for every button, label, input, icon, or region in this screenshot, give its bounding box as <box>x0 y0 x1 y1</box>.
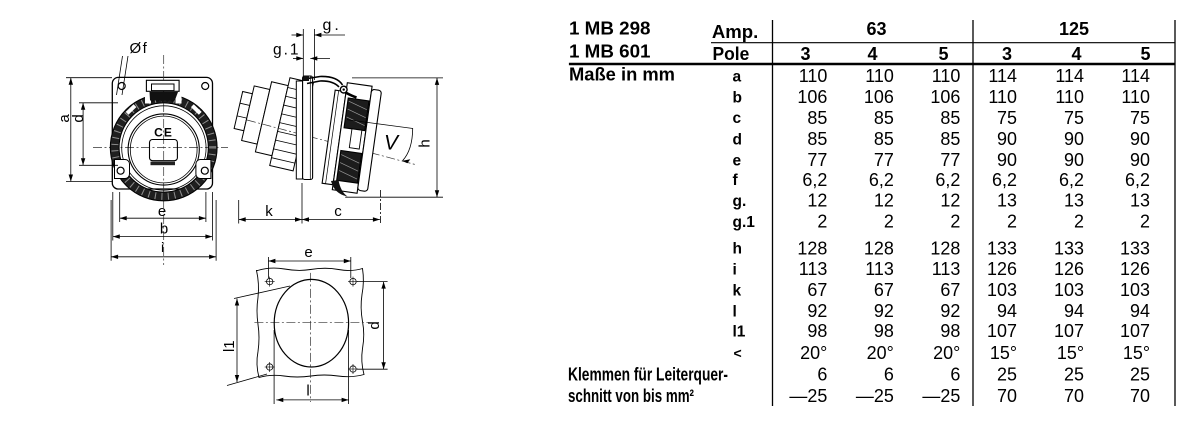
svg-text:85: 85 <box>874 108 894 128</box>
svg-text:106: 106 <box>797 87 827 107</box>
svg-text:20°: 20° <box>933 343 960 363</box>
svg-text:c: c <box>733 110 742 127</box>
svg-text:2: 2 <box>950 211 960 231</box>
svg-text:Pole: Pole <box>713 44 750 64</box>
svg-text:15°: 15° <box>990 343 1017 363</box>
svg-text:70: 70 <box>1130 386 1150 406</box>
svg-text:70: 70 <box>1064 386 1084 406</box>
svg-text:90: 90 <box>997 150 1017 170</box>
svg-text:g.1: g.1 <box>273 42 301 59</box>
svg-text:98: 98 <box>874 321 894 341</box>
svg-text:—25: —25 <box>856 386 894 406</box>
svg-text:103: 103 <box>1120 280 1150 300</box>
svg-text:c: c <box>334 203 342 220</box>
svg-text:126: 126 <box>987 259 1017 279</box>
svg-text:l1: l1 <box>733 324 746 341</box>
svg-text:126: 126 <box>1120 259 1150 279</box>
svg-text:13: 13 <box>1130 190 1150 210</box>
svg-text:90: 90 <box>1130 129 1150 149</box>
svg-text:106: 106 <box>864 87 894 107</box>
svg-text:l1: l1 <box>221 340 238 352</box>
svg-text:70: 70 <box>997 386 1017 406</box>
svg-text:g.1: g.1 <box>733 214 756 231</box>
svg-text:b: b <box>733 89 742 106</box>
svg-text:126: 126 <box>1054 259 1084 279</box>
svg-text:d: d <box>733 132 742 149</box>
svg-text:94: 94 <box>1130 301 1150 321</box>
svg-text:133: 133 <box>1120 238 1150 258</box>
svg-text:85: 85 <box>807 129 827 149</box>
svg-text:k: k <box>265 203 273 220</box>
svg-text:6,2: 6,2 <box>992 170 1017 190</box>
svg-text:13: 13 <box>1064 190 1084 210</box>
svg-text:b: b <box>160 221 168 238</box>
svg-text:133: 133 <box>987 238 1017 258</box>
svg-text:90: 90 <box>1064 129 1084 149</box>
svg-text:106: 106 <box>930 87 960 107</box>
svg-text:25: 25 <box>1130 364 1150 384</box>
svg-text:92: 92 <box>807 301 827 321</box>
svg-text:90: 90 <box>1130 150 1150 170</box>
svg-text:5: 5 <box>1140 44 1150 64</box>
svg-text:110: 110 <box>1055 87 1084 107</box>
svg-text:15°: 15° <box>1123 343 1150 363</box>
svg-text:20°: 20° <box>800 343 827 363</box>
svg-text:2: 2 <box>817 211 827 231</box>
svg-text:Maße in mm: Maße in mm <box>569 65 675 85</box>
svg-text:110: 110 <box>988 87 1017 107</box>
svg-text:25: 25 <box>1064 364 1084 384</box>
svg-text:a: a <box>733 69 742 86</box>
svg-text:107: 107 <box>1054 321 1084 341</box>
svg-text:103: 103 <box>987 280 1017 300</box>
svg-text:25: 25 <box>997 364 1017 384</box>
svg-text:90: 90 <box>1064 150 1084 170</box>
svg-text:67: 67 <box>807 280 827 300</box>
svg-text:schnitt von bis mm²: schnitt von bis mm² <box>568 386 694 406</box>
svg-text:l: l <box>306 383 309 400</box>
svg-text:85: 85 <box>940 129 960 149</box>
svg-text:k: k <box>733 283 742 300</box>
svg-text:6,2: 6,2 <box>869 170 894 190</box>
svg-text:6,2: 6,2 <box>935 170 960 190</box>
svg-text:94: 94 <box>997 301 1017 321</box>
svg-text:3: 3 <box>1002 44 1012 64</box>
svg-text:1 MB 298: 1 MB 298 <box>569 19 651 39</box>
svg-text:94: 94 <box>1064 301 1084 321</box>
svg-text:110: 110 <box>799 66 828 86</box>
svg-text:67: 67 <box>940 280 960 300</box>
svg-text:107: 107 <box>987 321 1017 341</box>
svg-text:Klemmen für Leiterquer-: Klemmen für Leiterquer- <box>568 365 728 385</box>
svg-text:128: 128 <box>864 238 894 258</box>
svg-text:6,2: 6,2 <box>1059 170 1084 190</box>
svg-text:98: 98 <box>940 321 960 341</box>
svg-text:98: 98 <box>807 321 827 341</box>
svg-text:e: e <box>158 203 166 220</box>
svg-text:113: 113 <box>932 259 961 279</box>
svg-text:67: 67 <box>874 280 894 300</box>
svg-text:6: 6 <box>950 364 960 384</box>
svg-text:g.: g. <box>323 17 342 34</box>
svg-text:15°: 15° <box>1057 343 1084 363</box>
svg-text:2: 2 <box>1074 211 1084 231</box>
svg-text:128: 128 <box>797 238 827 258</box>
svg-text:113: 113 <box>799 259 828 279</box>
svg-text:2: 2 <box>1007 211 1017 231</box>
svg-text:20°: 20° <box>867 343 894 363</box>
svg-text:h: h <box>417 139 434 147</box>
svg-text:107: 107 <box>1120 321 1150 341</box>
svg-text:92: 92 <box>940 301 960 321</box>
svg-text:i: i <box>733 262 737 279</box>
svg-text:6,2: 6,2 <box>1125 170 1150 190</box>
svg-text:90: 90 <box>997 129 1017 149</box>
svg-text:75: 75 <box>1130 108 1150 128</box>
svg-text:Amp.: Amp. <box>712 22 758 42</box>
svg-text:113: 113 <box>865 259 894 279</box>
svg-text:77: 77 <box>940 150 960 170</box>
svg-text:i: i <box>161 239 164 255</box>
svg-text:125: 125 <box>1059 19 1089 39</box>
svg-text:75: 75 <box>997 108 1017 128</box>
svg-text:d: d <box>366 321 383 329</box>
svg-text:85: 85 <box>940 108 960 128</box>
svg-text:114: 114 <box>1121 66 1150 86</box>
svg-text:77: 77 <box>807 150 827 170</box>
svg-text:13: 13 <box>997 190 1017 210</box>
svg-text:12: 12 <box>807 190 827 210</box>
svg-text:6,2: 6,2 <box>802 170 827 190</box>
svg-text:f: f <box>733 172 739 189</box>
svg-text:—25: —25 <box>922 386 960 406</box>
svg-text:g.: g. <box>733 193 747 210</box>
svg-text:12: 12 <box>874 190 894 210</box>
svg-text:114: 114 <box>988 66 1017 86</box>
svg-text:114: 114 <box>1055 66 1084 86</box>
svg-text:110: 110 <box>932 66 961 86</box>
svg-text:CE: CE <box>154 126 173 140</box>
svg-text:V: V <box>384 132 400 155</box>
svg-text:110: 110 <box>1121 87 1150 107</box>
svg-text:2: 2 <box>884 211 894 231</box>
svg-text:6: 6 <box>817 364 827 384</box>
svg-text:133: 133 <box>1054 238 1084 258</box>
svg-text:103: 103 <box>1054 280 1084 300</box>
svg-text:Øf: Øf <box>130 40 149 57</box>
svg-text:—25: —25 <box>789 386 827 406</box>
svg-text:d: d <box>70 114 87 122</box>
svg-text:12: 12 <box>940 190 960 210</box>
svg-text:128: 128 <box>930 238 960 258</box>
svg-text:5: 5 <box>938 44 948 64</box>
svg-text:110: 110 <box>865 66 894 86</box>
svg-text:4: 4 <box>867 44 877 64</box>
svg-text:l: l <box>733 303 737 320</box>
svg-text:2: 2 <box>1140 211 1150 231</box>
svg-text:77: 77 <box>874 150 894 170</box>
svg-text:75: 75 <box>1064 108 1084 128</box>
svg-text:85: 85 <box>807 108 827 128</box>
svg-text:85: 85 <box>874 129 894 149</box>
svg-text:e: e <box>304 244 312 261</box>
svg-text:4: 4 <box>1071 44 1081 64</box>
svg-text:92: 92 <box>874 301 894 321</box>
svg-text:h: h <box>733 241 742 258</box>
svg-text:<: < <box>734 345 742 361</box>
svg-text:6: 6 <box>884 364 894 384</box>
svg-text:e: e <box>733 152 742 169</box>
svg-text:63: 63 <box>866 19 886 39</box>
svg-text:1 MB 601: 1 MB 601 <box>569 42 651 62</box>
svg-text:3: 3 <box>800 44 810 64</box>
